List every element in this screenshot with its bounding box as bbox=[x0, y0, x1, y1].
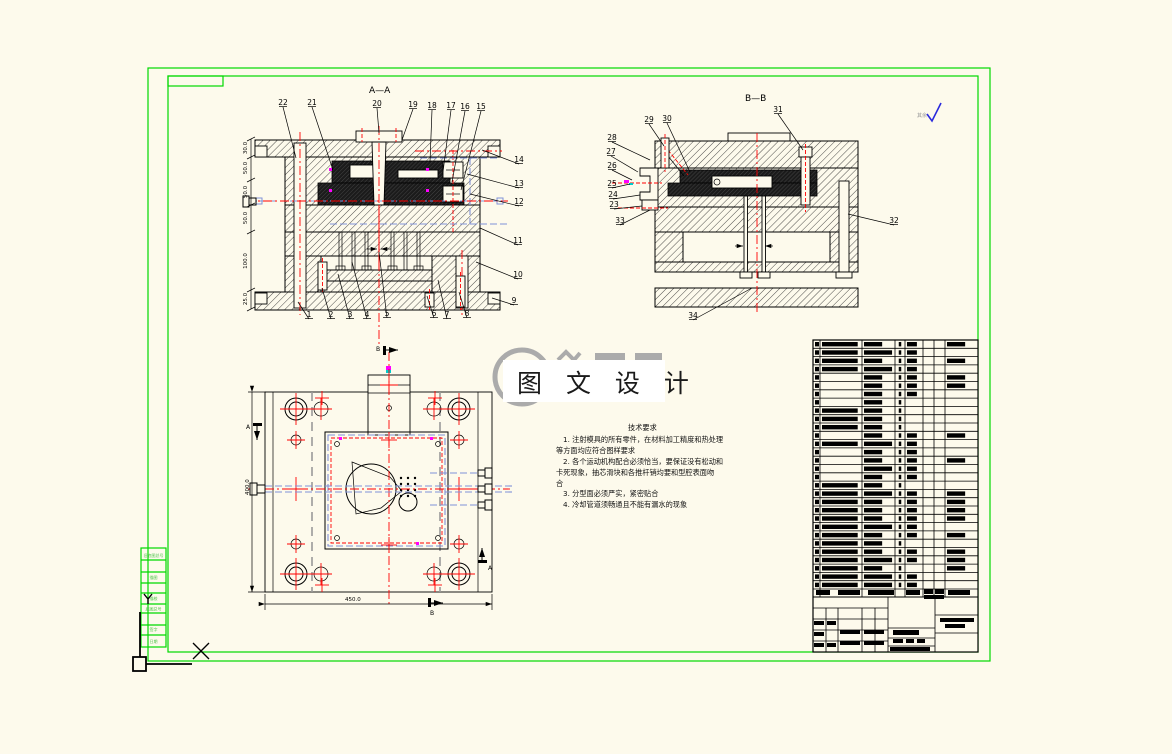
redacted-text bbox=[815, 367, 819, 371]
callout-24: 24 bbox=[608, 190, 618, 199]
redacted-text bbox=[899, 433, 902, 437]
redacted-text bbox=[907, 375, 917, 379]
plan-view[interactable]: B B A A 450.0 400.0 bbox=[245, 346, 512, 617]
redacted-text bbox=[947, 342, 965, 346]
redacted-text bbox=[899, 516, 902, 520]
redacted-text bbox=[864, 408, 882, 412]
callout-4: 4 bbox=[365, 310, 370, 319]
leader-line bbox=[476, 262, 518, 279]
callout-16: 16 bbox=[460, 102, 470, 111]
redacted-text bbox=[864, 450, 882, 454]
callout-13: 13 bbox=[514, 179, 524, 188]
redacted-text bbox=[822, 442, 858, 446]
redacted-text bbox=[899, 500, 902, 504]
redacted-text bbox=[815, 450, 819, 454]
redacted-text bbox=[907, 367, 917, 371]
redacted-text bbox=[815, 375, 819, 379]
redacted-text bbox=[815, 491, 819, 495]
redacted-text bbox=[907, 583, 917, 587]
redacted-text bbox=[907, 525, 917, 529]
plan-width-dim: 450.0 bbox=[345, 597, 361, 603]
view-title-bb: B—B bbox=[745, 94, 766, 104]
redacted-text bbox=[948, 590, 970, 595]
redacted-text bbox=[822, 491, 858, 495]
plan-height-dim: 400.0 bbox=[245, 479, 251, 495]
redacted-text bbox=[947, 500, 965, 504]
redacted-text bbox=[899, 392, 902, 396]
redacted-text bbox=[947, 491, 965, 495]
frame-grid-box bbox=[168, 76, 223, 86]
redacted-text bbox=[815, 541, 819, 545]
redacted-text bbox=[945, 624, 965, 628]
redacted-text bbox=[864, 400, 882, 404]
redacted-text bbox=[907, 516, 917, 520]
aa-dim: 50.0 bbox=[243, 185, 249, 198]
redacted-text bbox=[815, 400, 819, 404]
redacted-text bbox=[899, 467, 902, 471]
redacted-text bbox=[899, 408, 902, 412]
redacted-text bbox=[906, 639, 914, 643]
callout-15: 15 bbox=[476, 102, 486, 111]
redacted-text bbox=[947, 508, 965, 512]
callout-32: 32 bbox=[889, 216, 899, 225]
redacted-text bbox=[899, 558, 902, 562]
redacted-text bbox=[864, 350, 892, 354]
leader-line bbox=[612, 142, 650, 160]
redacted-text bbox=[947, 550, 965, 554]
svg-text:卡死现象，抽芯滑块和各推杆销均要和型腔表面吻: 卡死现象，抽芯滑块和各推杆销均要和型腔表面吻 bbox=[556, 468, 714, 477]
redacted-text bbox=[906, 590, 920, 595]
redacted-text bbox=[907, 384, 917, 388]
redacted-text bbox=[838, 590, 860, 595]
core-insert-lower bbox=[318, 183, 464, 205]
return-pin bbox=[839, 181, 849, 272]
leader-line bbox=[377, 108, 379, 133]
roughness-symbol: 其余 bbox=[917, 103, 941, 121]
svg-text:1. 注射模具的所有零件，在材料加工精度和热处理: 1. 注射模具的所有零件，在材料加工精度和热处理 bbox=[563, 435, 723, 444]
redacted-text bbox=[864, 516, 882, 520]
redacted-text bbox=[899, 508, 902, 512]
tech-title: 技术要求 bbox=[628, 423, 657, 432]
callout-33: 33 bbox=[615, 216, 625, 225]
callout-23: 23 bbox=[609, 200, 619, 209]
aa-dim: 50.0 bbox=[243, 161, 249, 174]
redacted-text bbox=[815, 574, 819, 578]
redacted-text bbox=[899, 525, 902, 529]
redacted-text bbox=[815, 425, 819, 429]
svg-text:4. 冷却管道须畅通且不能有漏水的现象: 4. 冷却管道须畅通且不能有漏水的现象 bbox=[563, 500, 687, 509]
callout-12: 12 bbox=[514, 197, 524, 206]
callout-17: 17 bbox=[446, 101, 456, 110]
callout-21: 21 bbox=[307, 98, 317, 107]
callout-26: 26 bbox=[607, 161, 617, 170]
callout-22: 22 bbox=[278, 98, 288, 107]
redacted-text bbox=[947, 384, 965, 388]
redacted-text bbox=[899, 425, 902, 429]
redacted-text bbox=[822, 550, 858, 554]
redacted-text bbox=[864, 574, 892, 578]
redacted-text bbox=[907, 450, 917, 454]
redacted-text bbox=[822, 342, 858, 346]
redacted-text bbox=[815, 475, 819, 479]
redacted-text bbox=[890, 647, 930, 651]
redacted-text bbox=[899, 533, 902, 537]
redacted-text bbox=[864, 375, 882, 379]
redacted-text bbox=[907, 491, 917, 495]
redacted-text bbox=[924, 589, 933, 594]
redacted-text bbox=[864, 433, 882, 437]
redacted-text bbox=[864, 359, 882, 363]
redacted-text bbox=[864, 500, 882, 504]
redacted-text bbox=[947, 566, 965, 570]
redacted-text bbox=[899, 417, 902, 421]
redacted-text bbox=[899, 475, 902, 479]
redacted-text bbox=[864, 417, 882, 421]
aa-dim: 100.0 bbox=[243, 253, 249, 269]
redacted-text bbox=[822, 500, 858, 504]
redacted-text bbox=[940, 618, 974, 622]
redacted-text bbox=[822, 359, 858, 363]
redacted-text bbox=[907, 342, 917, 346]
leader-line bbox=[402, 109, 413, 140]
redacted-text bbox=[815, 508, 819, 512]
roughness-prefix: 其余 bbox=[917, 112, 927, 119]
redacted-text bbox=[947, 458, 965, 462]
redacted-text bbox=[907, 442, 917, 446]
callout-30: 30 bbox=[662, 114, 672, 123]
redacted-text bbox=[947, 359, 965, 363]
redacted-text bbox=[899, 583, 902, 587]
redacted-text bbox=[864, 641, 884, 645]
callout-1: 1 bbox=[307, 310, 312, 319]
check-icon bbox=[927, 103, 941, 121]
callout-9: 9 bbox=[512, 296, 517, 305]
redacted-text bbox=[822, 525, 858, 529]
redacted-text bbox=[822, 408, 858, 412]
redacted-text bbox=[864, 541, 882, 545]
redacted-text bbox=[822, 508, 858, 512]
redacted-text bbox=[864, 483, 882, 487]
redacted-text bbox=[864, 566, 882, 570]
redacted-text bbox=[864, 558, 892, 562]
redacted-text bbox=[924, 595, 944, 599]
aa-dim: 30.0 bbox=[243, 141, 249, 154]
redacted-text bbox=[815, 583, 819, 587]
redacted-text bbox=[822, 417, 858, 421]
redacted-text bbox=[899, 458, 902, 462]
redacted-text bbox=[864, 491, 892, 495]
parts-list-table bbox=[813, 340, 978, 652]
callout-34: 34 bbox=[688, 311, 698, 320]
redacted-text bbox=[899, 400, 902, 404]
redacted-text bbox=[899, 541, 902, 545]
svg-text:合: 合 bbox=[556, 479, 563, 488]
redacted-text bbox=[815, 384, 819, 388]
aa-dimension-chain: 30.050.050.050.0100.025.0 bbox=[243, 137, 255, 311]
svg-text:2. 各个运动机构配合必须恰当，要保证没有松动和: 2. 各个运动机构配合必须恰当，要保证没有松动和 bbox=[563, 457, 723, 466]
redacted-text bbox=[907, 392, 917, 396]
section-view-bb[interactable]: B—B bbox=[606, 94, 899, 320]
redacted-text bbox=[815, 392, 819, 396]
redacted-text bbox=[899, 350, 902, 354]
redacted-text bbox=[815, 350, 819, 354]
redacted-text bbox=[864, 342, 882, 346]
redacted-text bbox=[907, 574, 917, 578]
redacted-text bbox=[815, 467, 819, 471]
aa-dim: 25.0 bbox=[243, 292, 249, 305]
redacted-text bbox=[864, 630, 884, 634]
redacted-text bbox=[815, 408, 819, 412]
redacted-text bbox=[827, 643, 836, 647]
redacted-text bbox=[864, 458, 882, 462]
redacted-text bbox=[907, 350, 917, 354]
redacted-text bbox=[907, 508, 917, 512]
margin-label: 描图 bbox=[150, 574, 158, 580]
redacted-text bbox=[907, 500, 917, 504]
redacted-text bbox=[822, 583, 858, 587]
redacted-text bbox=[935, 589, 944, 594]
redacted-text bbox=[815, 550, 819, 554]
redacted-text bbox=[864, 533, 882, 537]
margin-label: 日期 bbox=[150, 638, 158, 644]
redacted-text bbox=[864, 525, 892, 529]
callout-29: 29 bbox=[644, 115, 654, 124]
svg-text:等方面均应符合图样要求: 等方面均应符合图样要求 bbox=[556, 446, 635, 455]
redacted-text bbox=[893, 630, 919, 635]
view-title-aa: A—A bbox=[369, 86, 391, 96]
margin-label: 底图总号 bbox=[146, 606, 162, 612]
redacted-text bbox=[815, 442, 819, 446]
redacted-text bbox=[815, 533, 819, 537]
redacted-text bbox=[947, 375, 965, 379]
redacted-text bbox=[840, 630, 860, 634]
redacted-text bbox=[947, 558, 965, 562]
redacted-text bbox=[899, 359, 902, 363]
redacted-text bbox=[815, 566, 819, 570]
redacted-text bbox=[864, 425, 882, 429]
redacted-text bbox=[864, 392, 882, 396]
svg-text:B: B bbox=[376, 346, 380, 353]
redacted-text bbox=[947, 433, 965, 437]
callout-3: 3 bbox=[348, 310, 353, 319]
redacted-text bbox=[814, 632, 824, 636]
redacted-text bbox=[864, 508, 882, 512]
redacted-text bbox=[864, 583, 892, 587]
callout-28: 28 bbox=[607, 133, 617, 142]
redacted-text bbox=[815, 417, 819, 421]
redacted-text bbox=[816, 590, 830, 595]
margin-strip: 旧底图总号 描图 描校 底图总号 签字 日期 bbox=[141, 548, 166, 647]
redacted-text bbox=[822, 350, 858, 354]
redacted-text bbox=[822, 516, 858, 520]
redacted-text bbox=[815, 433, 819, 437]
redacted-text bbox=[947, 533, 965, 537]
callout-25: 25 bbox=[607, 179, 617, 188]
redacted-text bbox=[899, 450, 902, 454]
callout-18: 18 bbox=[427, 101, 437, 110]
redacted-text bbox=[868, 590, 894, 595]
redacted-text bbox=[907, 550, 917, 554]
redacted-text bbox=[899, 442, 902, 446]
callout-20: 20 bbox=[372, 99, 382, 108]
ucs-icon bbox=[133, 612, 192, 671]
redacted-text bbox=[840, 641, 860, 645]
redacted-text bbox=[864, 467, 892, 471]
redacted-text bbox=[815, 500, 819, 504]
callout-27: 27 bbox=[606, 147, 616, 156]
redacted-text bbox=[899, 384, 902, 388]
redacted-text bbox=[899, 367, 902, 371]
redacted-text bbox=[893, 639, 903, 643]
redacted-text bbox=[899, 342, 902, 346]
redacted-text bbox=[907, 359, 917, 363]
redacted-text bbox=[947, 516, 965, 520]
svg-text:A: A bbox=[246, 424, 251, 431]
redacted-text bbox=[822, 425, 858, 429]
redacted-text bbox=[815, 458, 819, 462]
redacted-text bbox=[827, 621, 836, 625]
redacted-text bbox=[899, 550, 902, 554]
callout-31: 31 bbox=[773, 105, 783, 114]
redacted-text bbox=[907, 433, 917, 437]
redacted-text bbox=[907, 458, 917, 462]
redacted-text bbox=[864, 550, 882, 554]
section-view-aa[interactable]: A—A bbox=[243, 86, 524, 344]
redacted-text bbox=[917, 639, 925, 643]
redacted-text bbox=[822, 483, 858, 487]
watermark-text: 图 文 设 计 bbox=[517, 369, 697, 398]
redacted-text bbox=[822, 558, 858, 562]
redacted-text bbox=[899, 483, 902, 487]
redacted-text bbox=[822, 367, 858, 371]
redacted-text bbox=[815, 558, 819, 562]
callout-19: 19 bbox=[408, 100, 418, 109]
redacted-text bbox=[815, 516, 819, 520]
redacted-text bbox=[864, 367, 892, 371]
tech-requirements: 技术要求 1. 注射模具的所有零件，在材料加工精度和热处理 等方面均应符合图样要… bbox=[556, 423, 723, 509]
redacted-text bbox=[864, 442, 892, 446]
margin-label: 签字 bbox=[150, 626, 158, 632]
margin-label: 旧底图总号 bbox=[144, 552, 164, 558]
cad-drawing-area[interactable]: 旧底图总号 描图 描校 底图总号 签字 日期 A—A bbox=[0, 0, 1172, 754]
aa-dim: 50.0 bbox=[243, 211, 249, 224]
redacted-text bbox=[815, 342, 819, 346]
redacted-text bbox=[822, 574, 858, 578]
redacted-text bbox=[822, 533, 858, 537]
redacted-text bbox=[822, 541, 858, 545]
redacted-text bbox=[864, 384, 882, 388]
redacted-text bbox=[899, 491, 902, 495]
redacted-text bbox=[899, 574, 902, 578]
svg-text:3. 分型面必须严实，紧密贴合: 3. 分型面必须严实，紧密贴合 bbox=[563, 489, 658, 498]
redacted-text bbox=[864, 475, 882, 479]
redacted-text bbox=[907, 475, 917, 479]
redacted-text bbox=[814, 621, 824, 625]
redacted-text bbox=[814, 643, 824, 647]
watermark: 图 文 设 计 bbox=[495, 350, 697, 404]
redacted-text bbox=[899, 566, 902, 570]
redacted-text bbox=[815, 359, 819, 363]
redacted-text bbox=[907, 533, 917, 537]
redacted-text bbox=[899, 375, 902, 379]
cad-canvas[interactable]: 旧底图总号 描图 描校 底图总号 签字 日期 A—A bbox=[0, 0, 1172, 754]
x-marker bbox=[193, 643, 209, 659]
redacted-text bbox=[822, 566, 858, 570]
redacted-text bbox=[815, 483, 819, 487]
svg-text:B: B bbox=[430, 610, 434, 617]
redacted-text bbox=[907, 558, 917, 562]
redacted-text bbox=[815, 525, 819, 529]
redacted-text bbox=[907, 467, 917, 471]
